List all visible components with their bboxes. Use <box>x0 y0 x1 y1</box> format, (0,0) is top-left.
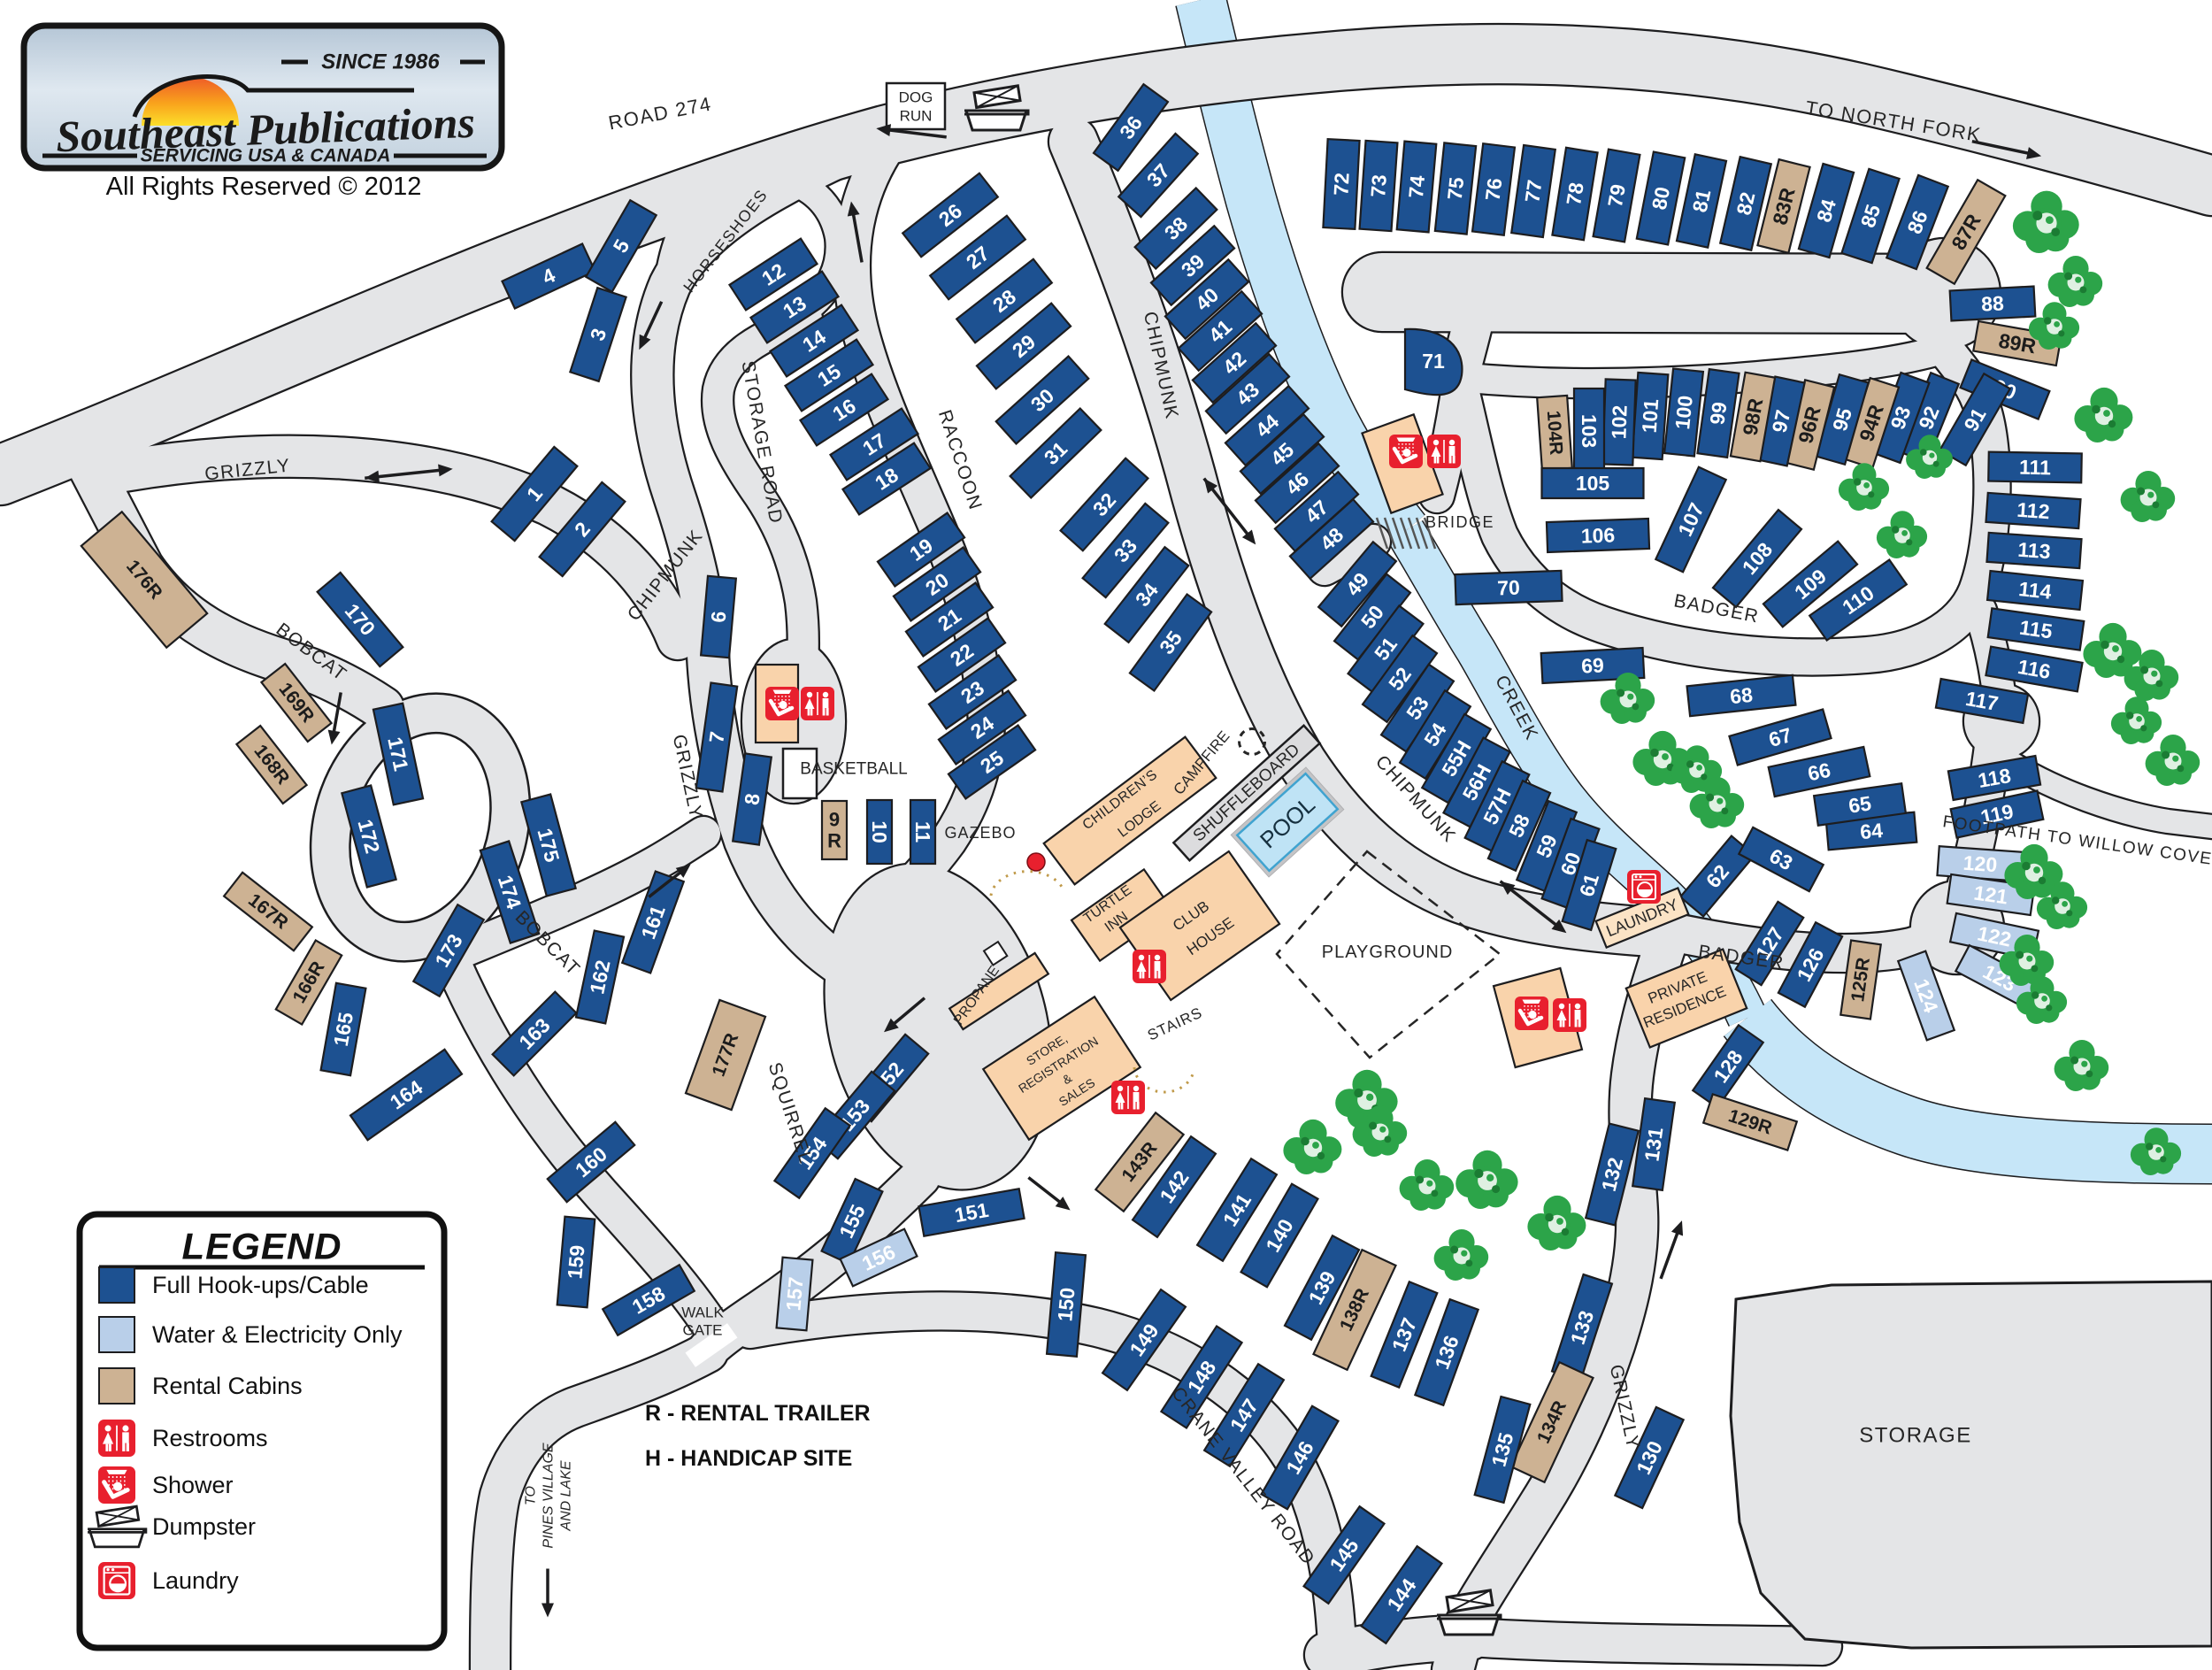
svg-text:103: 103 <box>1578 414 1601 448</box>
svg-text:PINES VILLAGE: PINES VILLAGE <box>541 1443 557 1548</box>
svg-text:11: 11 <box>911 821 934 843</box>
svg-text:STORAGE: STORAGE <box>1859 1424 1971 1448</box>
svg-text:101: 101 <box>1638 398 1663 434</box>
svg-text:150: 150 <box>1053 1287 1079 1322</box>
svg-text:121: 121 <box>1972 881 2009 908</box>
svg-text:120: 120 <box>1962 851 1998 877</box>
svg-text:75: 75 <box>1443 176 1469 201</box>
svg-text:88: 88 <box>1981 291 2005 315</box>
svg-text:65: 65 <box>1847 791 1873 817</box>
svg-text:64: 64 <box>1859 819 1884 843</box>
svg-text:76: 76 <box>1481 177 1507 203</box>
svg-text:SERVICING USA & CANADA: SERVICING USA & CANADA <box>141 146 391 166</box>
svg-text:Rental Cabins: Rental Cabins <box>152 1373 303 1399</box>
svg-text:Shower: Shower <box>152 1472 234 1498</box>
svg-text:115: 115 <box>2018 616 2055 643</box>
svg-text:112: 112 <box>2016 498 2051 524</box>
svg-text:SINCE 1986: SINCE 1986 <box>321 50 440 74</box>
svg-text:WALK: WALK <box>681 1304 724 1321</box>
svg-text:80: 80 <box>1647 185 1674 212</box>
svg-text:72: 72 <box>1329 173 1353 196</box>
svg-text:111: 111 <box>2019 456 2051 480</box>
svg-text:73: 73 <box>1366 173 1391 197</box>
svg-text:159: 159 <box>563 1244 588 1280</box>
svg-text:R: R <box>827 830 841 852</box>
svg-text:AND LAKE: AND LAKE <box>559 1460 574 1531</box>
svg-text:Water & Electricity Only: Water & Electricity Only <box>152 1321 403 1348</box>
svg-text:DOG: DOG <box>899 89 933 106</box>
svg-text:105: 105 <box>1576 472 1610 495</box>
svg-text:10: 10 <box>868 820 891 843</box>
svg-text:Dumpster: Dumpster <box>152 1513 256 1540</box>
svg-text:9: 9 <box>829 809 840 831</box>
svg-text:100: 100 <box>1671 395 1697 431</box>
svg-text:69: 69 <box>1581 653 1605 677</box>
svg-text:TO: TO <box>524 1486 539 1505</box>
svg-text:104R: 104R <box>1543 410 1566 456</box>
svg-text:Laundry: Laundry <box>152 1567 239 1594</box>
svg-text:66: 66 <box>1806 758 1832 786</box>
svg-text:102: 102 <box>1607 404 1631 439</box>
svg-text:68: 68 <box>1729 683 1754 709</box>
svg-text:99: 99 <box>1705 401 1731 427</box>
svg-text:131: 131 <box>1640 1126 1667 1163</box>
svg-text:RUN: RUN <box>900 108 933 125</box>
svg-text:77: 77 <box>1520 179 1546 204</box>
svg-text:GAZEBO: GAZEBO <box>944 824 1016 842</box>
svg-text:79: 79 <box>1603 182 1630 209</box>
svg-text:6: 6 <box>706 610 730 623</box>
svg-text:BASKETBALL: BASKETBALL <box>800 760 907 779</box>
svg-text:97: 97 <box>1768 408 1795 435</box>
svg-text:78: 78 <box>1562 181 1588 207</box>
svg-text:R - RENTAL TRAILER: R - RENTAL TRAILER <box>645 1401 871 1426</box>
svg-text:PLAYGROUND: PLAYGROUND <box>1322 943 1454 962</box>
svg-text:LEGEND: LEGEND <box>181 1226 342 1267</box>
svg-text:157: 157 <box>781 1276 807 1312</box>
svg-text:H - HANDICAP SITE: H - HANDICAP SITE <box>645 1446 852 1471</box>
svg-text:74: 74 <box>1404 174 1429 199</box>
svg-text:71: 71 <box>1422 350 1445 373</box>
svg-text:114: 114 <box>2017 577 2053 604</box>
svg-text:113: 113 <box>2017 538 2052 564</box>
svg-text:70: 70 <box>1497 576 1520 600</box>
svg-text:All Rights Reserved © 2012: All Rights Reserved © 2012 <box>106 173 422 201</box>
svg-text:BRIDGE: BRIDGE <box>1425 513 1494 531</box>
svg-text:Restrooms: Restrooms <box>152 1425 268 1451</box>
svg-text:Full Hook-ups/Cable: Full Hook-ups/Cable <box>152 1272 369 1298</box>
svg-text:106: 106 <box>1580 523 1615 547</box>
svg-text:GATE: GATE <box>682 1322 722 1339</box>
